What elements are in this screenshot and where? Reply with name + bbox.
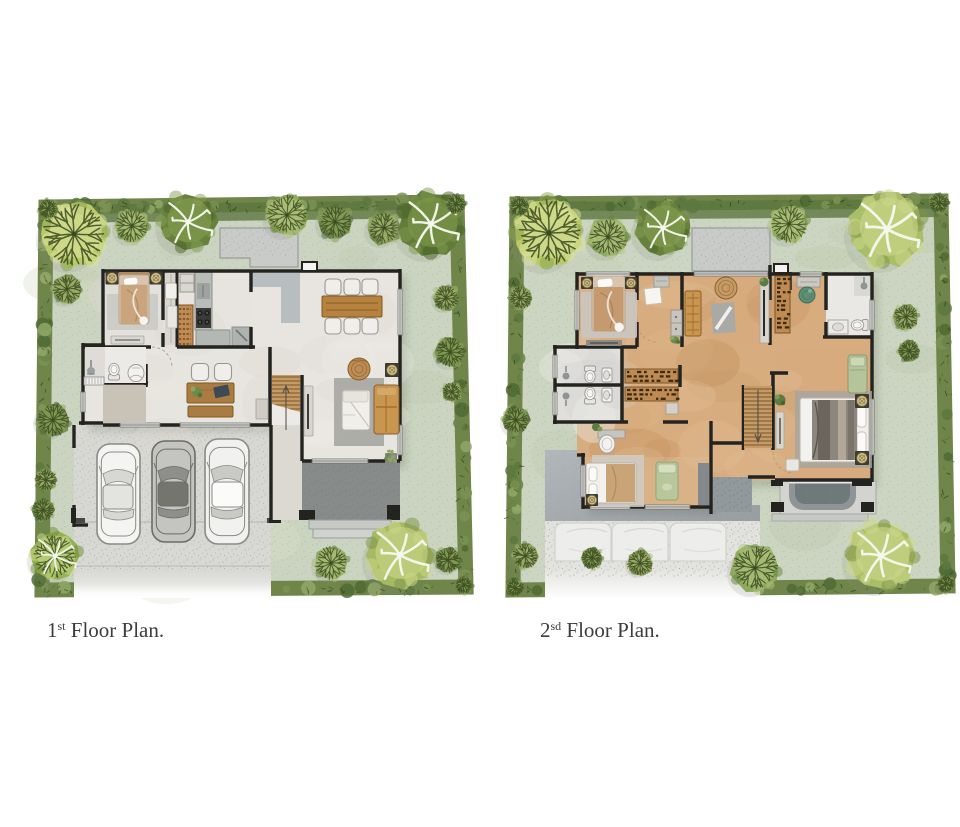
- svg-text:1st Floor Plan.: 1st Floor Plan.: [47, 618, 164, 642]
- svg-text:2sd Floor Plan.: 2sd Floor Plan.: [540, 618, 660, 642]
